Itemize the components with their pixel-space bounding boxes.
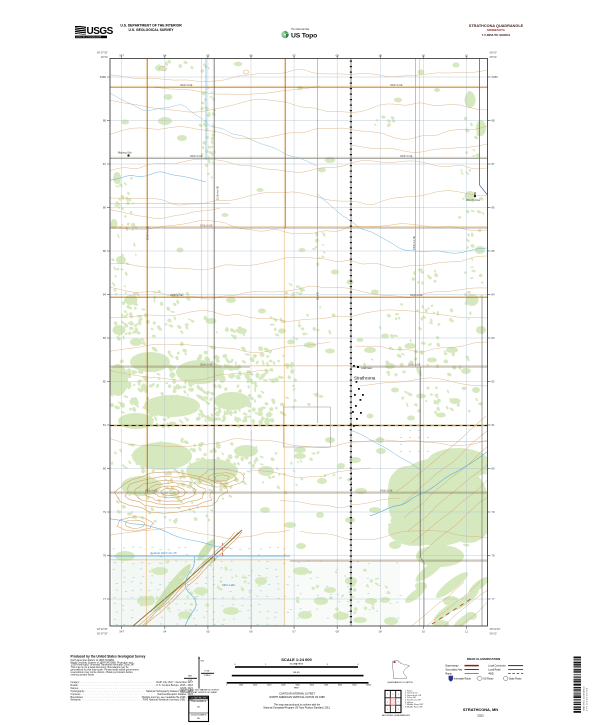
svg-text:2000: 2000: [253, 685, 257, 687]
svg-text:1000: 1000: [239, 685, 243, 687]
svg-text:88: 88: [103, 119, 107, 123]
svg-text:Grain Elev: Grain Elev: [361, 367, 373, 370]
svg-text:07: 07: [293, 54, 297, 58]
svg-text:81: 81: [103, 423, 107, 427]
svg-text:Wind Turbine: Wind Turbine: [466, 199, 481, 202]
svg-text:78: 78: [103, 554, 107, 558]
svg-text:Ramp: Ramp: [446, 672, 453, 675]
svg-text:08: 08: [336, 630, 340, 634]
svg-text:entering private lands.: entering private lands.: [71, 673, 95, 676]
svg-text:USGS: USGS: [87, 26, 114, 37]
svg-text:5389: 5389: [492, 75, 499, 79]
svg-text:87: 87: [492, 162, 496, 166]
svg-text:350th St NE: 350th St NE: [408, 364, 421, 367]
svg-text:48°22'30": 48°22'30": [97, 627, 108, 631]
svg-text:09: 09: [379, 630, 383, 634]
svg-text:380th St NE: 380th St NE: [400, 155, 413, 158]
svg-text:NORTH AMERICAN VERTICAL DATUM: NORTH AMERICAN VERTICAL DATUM OF 1988: [269, 696, 325, 699]
svg-text:0: 0: [226, 685, 227, 687]
svg-text:US Route: US Route: [483, 677, 494, 680]
svg-text:7.5-MINUTE SERIES: 7.5-MINUTE SERIES: [482, 33, 511, 37]
svg-text:5000: 5000: [295, 685, 299, 687]
svg-text:05: 05: [206, 630, 210, 634]
svg-text:06: 06: [249, 630, 253, 634]
svg-text:1°33′: 1°33′: [188, 680, 193, 682]
svg-text:SCALE 1:24 000: SCALE 1:24 000: [281, 657, 312, 662]
svg-text:86: 86: [492, 206, 496, 210]
svg-text:ISBN 978-1-04-091936-9: ISBN 978-1-04-091936-9: [584, 686, 586, 711]
svg-text:DECLINATION AT CENTER OF SHEET: DECLINATION AT CENTER OF SHEET: [181, 691, 219, 694]
svg-text:STRATHCONA QUADRANGLE: STRATHCONA QUADRANGLE: [469, 24, 524, 28]
svg-text:83: 83: [492, 336, 496, 340]
svg-text:FWS National Wetlands Inventor: FWS National Wetlands Inventory 1981 - 1…: [143, 699, 194, 702]
svg-text:National Geospatial Program US: National Geospatial Program US Topo Prod…: [264, 706, 331, 709]
svg-text:8 Middle River NE: 8 Middle River NE: [405, 705, 423, 708]
svg-text:2022: 2022: [477, 714, 484, 718]
svg-text:96°07'30": 96°07'30": [97, 632, 108, 636]
svg-text:87: 87: [103, 162, 107, 166]
svg-text:380th St NE: 380th St NE: [190, 155, 203, 158]
svg-text:Wetlands: Wetlands: [71, 699, 82, 702]
svg-text:48°22'30": 48°22'30": [490, 627, 501, 631]
svg-text:77: 77: [492, 597, 496, 601]
svg-text:4WD: 4WD: [488, 672, 494, 675]
svg-text:79: 79: [492, 510, 496, 514]
svg-text:84: 84: [492, 293, 496, 297]
svg-text:240th Ave NE: 240th Ave NE: [413, 236, 416, 250]
svg-text:11: 11: [465, 54, 468, 58]
svg-text:U.S. GEOLOGICAL SURVEY: U.S. GEOLOGICAL SURVEY: [128, 28, 174, 32]
svg-text:MN: MN: [188, 676, 192, 678]
svg-text:QUADRANGLE LOCATION: QUADRANGLE LOCATION: [387, 681, 413, 684]
svg-text:Malung Sch: Malung Sch: [118, 151, 132, 155]
svg-text:48°30': 48°30': [490, 55, 498, 59]
svg-text:Strathcona: Strathcona: [354, 376, 376, 381]
svg-text:10: 10: [422, 630, 426, 634]
svg-text:370th St NE: 370th St NE: [200, 225, 213, 228]
svg-text:82: 82: [103, 380, 107, 384]
svg-text:Local Road: Local Road: [488, 668, 501, 671]
svg-text:Expressway: Expressway: [446, 665, 460, 668]
svg-text:STRATHCONA, MN: STRATHCONA, MN: [463, 707, 498, 712]
svg-text:State Route: State Route: [509, 677, 522, 680]
svg-text:09: 09: [379, 54, 383, 58]
svg-text:77: 77: [103, 597, 107, 601]
svg-text:360th St NE: 360th St NE: [410, 294, 423, 297]
svg-text:08: 08: [336, 54, 340, 58]
svg-text:MINNESOTA: MINNESOTA: [487, 28, 506, 32]
svg-text:GN: GN: [201, 661, 205, 663]
svg-text:11: 11: [465, 630, 468, 634]
svg-text:86: 86: [103, 206, 107, 210]
svg-text:6000: 6000: [310, 685, 314, 687]
svg-text:Ditch 21: Ditch 21: [317, 291, 320, 300]
svg-text:340th St NE: 340th St NE: [380, 490, 393, 493]
svg-text:4000: 4000: [281, 685, 285, 687]
svg-text:07: 07: [293, 630, 297, 634]
svg-text:85: 85: [492, 249, 496, 253]
svg-text:Mud Lake: Mud Lake: [222, 583, 236, 587]
svg-text:US Topo: US Topo: [291, 33, 317, 40]
svg-text:81: 81: [492, 423, 496, 427]
svg-text:9000: 9000: [352, 685, 356, 687]
svg-text:48°30': 48°30': [101, 55, 109, 59]
svg-text:11 MILS: 11 MILS: [204, 675, 212, 677]
svg-text:05: 05: [206, 54, 210, 58]
svg-text:Produced by the United States: Produced by the United States Geological…: [71, 655, 146, 659]
svg-text:80: 80: [103, 467, 107, 471]
svg-text:04: 04: [163, 630, 167, 634]
svg-text:10: 10: [422, 54, 426, 58]
svg-text:79: 79: [103, 510, 107, 514]
svg-text:9 7 8 1 0 4 0 9 1 9 3 6 9: 9 7 8 1 0 4 0 9 1 9 3 6 9: [587, 687, 589, 711]
svg-text:547: 547: [119, 630, 124, 634]
svg-text:science for a changing world: science for a changing world: [76, 37, 101, 39]
svg-text:0°36′: 0°36′: [205, 671, 211, 673]
svg-text:547: 547: [119, 54, 124, 58]
svg-text:96°00': 96°00': [490, 51, 498, 55]
svg-text:83: 83: [103, 336, 107, 340]
svg-text:78: 78: [492, 554, 496, 558]
svg-text:80: 80: [492, 467, 496, 471]
svg-text:FEET: FEET: [294, 687, 300, 689]
svg-text:360th St NE: 360th St NE: [170, 294, 183, 297]
svg-text:390th St NE: 390th St NE: [390, 84, 403, 87]
svg-text:7000: 7000: [324, 685, 328, 687]
svg-text:340th St NE: 340th St NE: [145, 490, 158, 493]
svg-text:06: 06: [249, 54, 253, 58]
svg-text:10000: 10000: [366, 685, 371, 687]
svg-text:85: 85: [103, 249, 107, 253]
svg-text:The National Map: The National Map: [291, 28, 310, 31]
svg-text:88: 88: [492, 119, 496, 123]
svg-text:200th Ave NE: 200th Ave NE: [147, 226, 150, 240]
svg-text:390th St NE: 390th St NE: [180, 84, 193, 87]
svg-text:MILES: MILES: [293, 672, 300, 674]
svg-text:350th St NE: 350th St NE: [200, 364, 213, 367]
svg-text:82: 82: [492, 380, 496, 384]
svg-text:3000: 3000: [267, 685, 271, 687]
svg-text:ADJOINING QUADRANGLES: ADJOINING QUADRANGLES: [382, 714, 410, 717]
svg-text:210th Ave NE: 210th Ave NE: [217, 186, 220, 200]
svg-text:Secondary Hwy: Secondary Hwy: [446, 668, 464, 671]
svg-text:Interstate Route: Interstate Route: [454, 677, 472, 680]
svg-text:ROAD CLASSIFICATION: ROAD CLASSIFICATION: [467, 657, 500, 661]
svg-text:U.S. DEPARTMENT OF THE INTERIO: U.S. DEPARTMENT OF THE INTERIOR: [120, 23, 182, 27]
svg-text:Local Connector: Local Connector: [488, 665, 506, 668]
svg-text:96°00': 96°00': [490, 632, 498, 636]
svg-text:96°07'30": 96°07'30": [97, 51, 108, 55]
svg-text:5389: 5389: [100, 75, 107, 79]
svg-text:04: 04: [163, 54, 167, 58]
svg-text:84: 84: [103, 293, 107, 297]
svg-text:Judicial Ditch No 25: Judicial Ditch No 25: [150, 551, 177, 555]
svg-text:8000: 8000: [338, 685, 342, 687]
